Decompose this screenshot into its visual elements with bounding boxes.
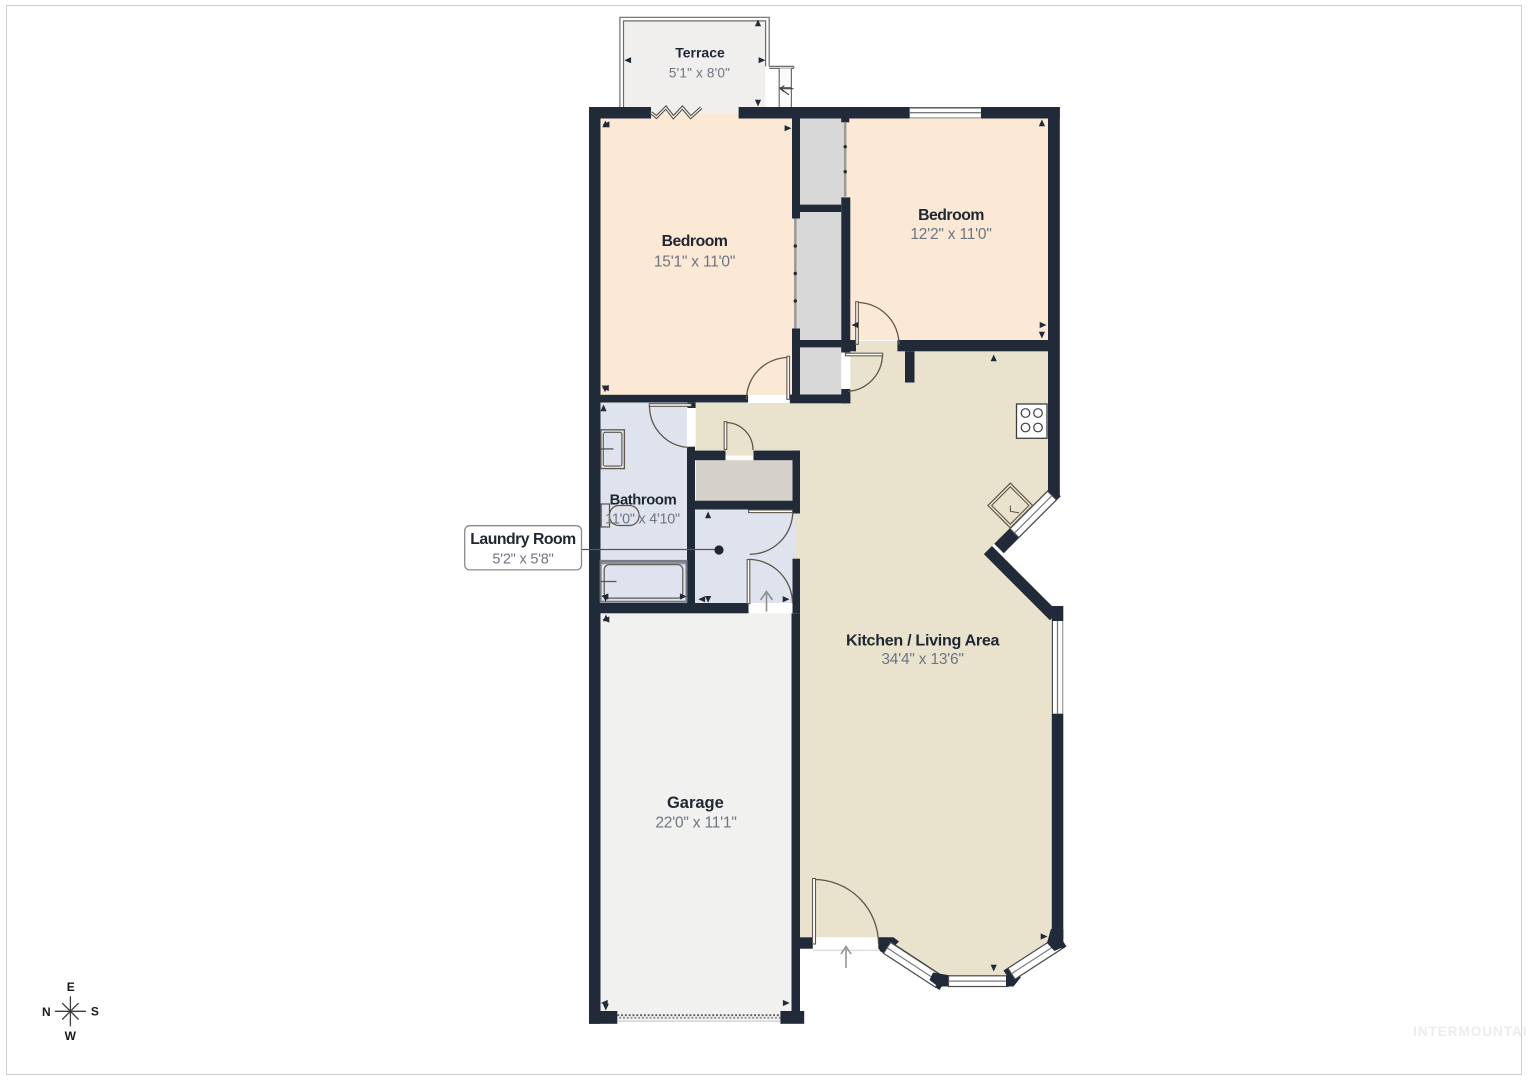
- svg-text:Terrace: Terrace: [675, 45, 725, 61]
- svg-text:INTERMOUNTAIN: INTERMOUNTAIN: [1413, 1024, 1528, 1039]
- svg-text:5'2" x 5'8": 5'2" x 5'8": [492, 552, 553, 568]
- svg-text:S: S: [91, 1005, 99, 1019]
- svg-text:Kitchen / Living Area: Kitchen / Living Area: [846, 632, 1001, 650]
- svg-text:34'4" x 13'6": 34'4" x 13'6": [881, 651, 963, 668]
- svg-text:N: N: [42, 1005, 51, 1019]
- svg-text:15'1" x 11'0": 15'1" x 11'0": [654, 254, 735, 271]
- svg-text:W: W: [65, 1029, 77, 1043]
- svg-text:5'1" x 8'0": 5'1" x 8'0": [669, 66, 730, 81]
- svg-text:11'0" x 4'10": 11'0" x 4'10": [605, 512, 680, 528]
- svg-text:Laundry Room: Laundry Room: [470, 531, 576, 548]
- svg-text:Bedroom: Bedroom: [918, 207, 984, 224]
- svg-text:12'2" x 11'0": 12'2" x 11'0": [910, 226, 991, 243]
- svg-text:Garage: Garage: [667, 794, 724, 812]
- svg-text:22'0" x 11'1": 22'0" x 11'1": [655, 815, 736, 832]
- svg-text:E: E: [67, 980, 75, 994]
- svg-text:Bedroom: Bedroom: [662, 233, 728, 250]
- svg-text:Bathroom: Bathroom: [610, 492, 677, 508]
